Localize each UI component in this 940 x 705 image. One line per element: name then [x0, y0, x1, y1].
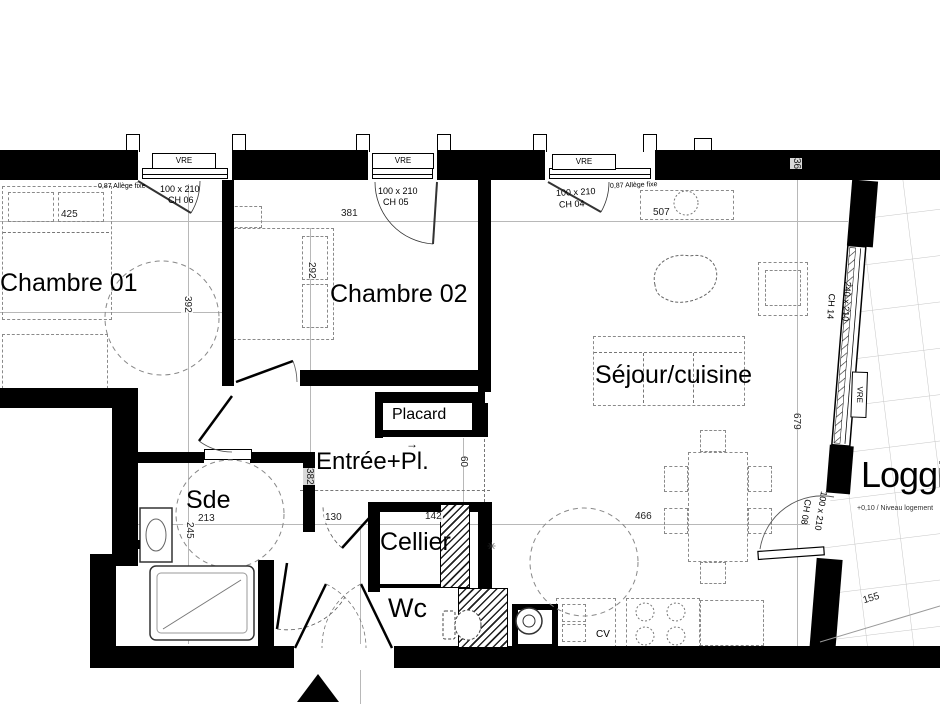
dim-entree-depth: 382 [303, 468, 315, 485]
sink-bowl [562, 624, 586, 642]
kitchen-hob-label: CV [596, 630, 610, 641]
room-label-chambre02: Chambre 02 [330, 281, 468, 307]
window-tag-vre-3: VRE [552, 154, 616, 170]
entrance-opening [294, 644, 394, 670]
chair [664, 508, 688, 534]
room-label-placard: Placard [392, 407, 446, 424]
room-label-cellier: Cellier [380, 529, 451, 555]
dim-sejour-depth: 679 [790, 413, 802, 430]
room-label-sejour: Séjour/cuisine [595, 362, 752, 388]
room-label-loggia: Loggia [861, 456, 940, 494]
placard-arrow: → [406, 438, 418, 451]
wall-top-3 [437, 150, 545, 180]
bay-size: 240 x 210 [840, 281, 852, 321]
window1-sill-note: 0,87 Allège fixe [98, 183, 145, 190]
sink-bowl [562, 604, 586, 622]
wall-ch02-south-1 [222, 370, 234, 386]
chair [700, 562, 726, 584]
wall-outer-west [90, 554, 116, 656]
kitchen-counter [700, 600, 764, 646]
wall-shower-east [258, 560, 274, 648]
room-label-entree: Entrée+Pl. [316, 449, 429, 474]
wall-placard-left [375, 392, 383, 438]
dim-sde-width: 213 [197, 514, 216, 524]
wall-cellier-east [478, 502, 492, 594]
hall-limit-line [300, 490, 490, 491]
duct-shaft-2 [458, 588, 508, 648]
wall-sde-west [112, 406, 138, 564]
room-label-wc: Wc [388, 594, 427, 622]
window-tag-vre-2: VRE [372, 153, 434, 169]
dim-sejour-width: 507 [652, 208, 671, 218]
bed-line [3, 232, 109, 233]
dim-passage: 60 [457, 456, 469, 467]
window1-size: 100 x 210 [160, 185, 200, 194]
wall-top-1 [0, 150, 138, 180]
window-frame [142, 168, 228, 179]
pillow [302, 284, 328, 328]
dim-chain-v4 [360, 526, 361, 704]
nightstand-ch02 [230, 206, 262, 228]
dim-ch02-width: 381 [340, 209, 359, 219]
wall-sejour-west [478, 180, 491, 392]
wall-cellier-west [368, 502, 380, 592]
sofa-back-line [594, 352, 742, 353]
dim-chain-v3 [797, 152, 798, 648]
wall-ch01-south [0, 388, 138, 408]
window2-size: 100 x 210 [378, 187, 418, 196]
window1-ref: CH 06 [168, 196, 194, 205]
wall-wc-partition [368, 584, 446, 588]
dim-chain-v1 [188, 184, 189, 644]
wall-ch01-ch02-divider [222, 180, 234, 372]
loggia-level-note: +0,10 / Niveau logement [857, 505, 933, 512]
pillow [8, 192, 54, 222]
dim-cellier-width: 142 [424, 512, 443, 522]
chair [664, 466, 688, 492]
kitchen-column [512, 604, 558, 650]
wall-top-2 [232, 150, 368, 180]
room-label-sde: Sde [186, 487, 230, 513]
wall-sde-north-1 [138, 452, 204, 463]
sde-sliding-door [204, 449, 252, 460]
floor-plan: VRE VRE VRE VRE 0,87 Allège fixe 100 x 2… [0, 0, 940, 705]
wall-ch02-south-2 [300, 370, 478, 386]
dim-hall: 130 [324, 513, 343, 523]
dim-ch01-width: 425 [60, 210, 79, 220]
dim-ch02-depth: 292 [305, 262, 317, 279]
dim-kitchen-width: 466 [634, 512, 653, 522]
kitchen-hob-unit [626, 598, 700, 648]
window-tag-vre-bay: VRE [850, 371, 868, 418]
bay-ref: CH 14 [825, 293, 836, 319]
dim-wall-offset: 36 [790, 158, 802, 169]
wardrobe-ch01 [2, 334, 108, 394]
chair [700, 430, 726, 452]
window-frame [372, 168, 433, 179]
room-label-chambre01: Chambre 01 [0, 270, 138, 296]
dining-table [688, 452, 748, 562]
dim-chain-top [0, 221, 848, 222]
dim-sde-depth: 245 [183, 522, 195, 539]
wall-placard-top [375, 392, 485, 403]
wall-placard-right [472, 403, 488, 437]
wall-sde-east [303, 452, 315, 532]
window2-ref: CH 05 [383, 198, 409, 207]
window3-ref: CH 04 [559, 199, 585, 210]
window-tag-vre-1: VRE [152, 153, 216, 169]
chair [748, 466, 772, 492]
armchair-seat [765, 270, 801, 306]
chair [748, 508, 772, 534]
dim-ch01-depth: 392 [181, 296, 193, 313]
